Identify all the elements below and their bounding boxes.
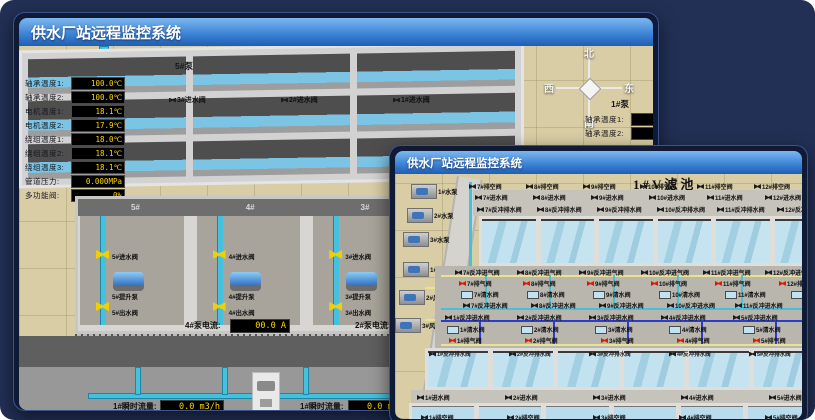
backwash-drain-valve[interactable]: 3#反冲排水阀 xyxy=(589,350,669,358)
air-release-valve[interactable]: 9#排气阀 xyxy=(587,279,651,288)
valve-icon xyxy=(517,270,524,275)
desktop: 供水厂站远程监控系统 取水泵房 3#进水阀2#进水阀1#进水阀 北 南 西 东 xyxy=(0,0,815,420)
inlet-valve[interactable]: 7#进水阀 xyxy=(475,193,533,202)
bay-pump-label: 5#提升泵 xyxy=(112,292,138,301)
valve-icon xyxy=(445,315,452,320)
valve-label: 3#进水阀 xyxy=(601,393,626,402)
backwash-inlet-valve[interactable]: 10#反冲进水阀 xyxy=(667,301,735,310)
valve-label: 5#排空阀 xyxy=(773,413,798,419)
valve-label: 2#排空阀 xyxy=(515,413,540,419)
valve-label: 7#排空阀 xyxy=(477,182,502,191)
backwash-drain-valve[interactable]: 8#反冲排水阀 xyxy=(537,205,597,214)
valve-label: 12#进水阀 xyxy=(773,193,801,202)
valve-icon xyxy=(707,195,714,200)
valve-icon xyxy=(429,352,436,357)
readout-row: 管道压力: 0.000MPa xyxy=(25,174,193,188)
clean-water-valve[interactable]: 8#清水阀 xyxy=(527,290,593,299)
valve-icon xyxy=(715,281,722,286)
clean-water-valve[interactable]: 2#清水阀 xyxy=(521,325,595,334)
empty-valve[interactable]: 2#排空阀 xyxy=(507,413,593,419)
valve-label: 9#进水阀 xyxy=(599,193,624,202)
air-inlet-valve[interactable]: 8#反冲进气阀 xyxy=(517,268,579,277)
water-box-icon xyxy=(461,291,473,299)
valve-icon xyxy=(657,207,664,212)
valve-icon xyxy=(533,195,540,200)
readout-row: 绕组温度3: 18.1℃ xyxy=(25,160,193,174)
air-release-valve[interactable]: 11#排气阀 xyxy=(715,279,779,288)
pump-motor-icon xyxy=(416,188,428,195)
intake-valve[interactable]: 2#进水阀 xyxy=(281,95,393,105)
valve-label: 3#反冲进水阀 xyxy=(597,313,634,322)
valve-icon xyxy=(449,338,456,343)
water-box-icon xyxy=(743,326,755,334)
valve-label: 9#反冲进气阀 xyxy=(587,268,624,277)
valve-label: 7#排气阀 xyxy=(467,279,492,288)
air-inlet-valve[interactable]: 11#反冲进气阀 xyxy=(703,268,765,277)
unit-label: 3#水泵 xyxy=(430,235,450,244)
clean-water-valve[interactable]: 10#清水阀 xyxy=(659,290,725,299)
unit-label: 2#水泵 xyxy=(434,211,454,220)
water-pump-unit[interactable]: 2#水泵 xyxy=(407,208,433,223)
valve-icon xyxy=(765,195,772,200)
valve-label: 11#清水阀 xyxy=(738,290,766,299)
panel-title: 5#泵 xyxy=(175,60,193,72)
air-release-valve[interactable]: 7#排气阀 xyxy=(459,279,523,288)
valve-label: 5#进水阀 xyxy=(777,393,802,402)
valve-label: 8#反冲进水阀 xyxy=(539,301,576,310)
water-box-icon xyxy=(791,291,802,299)
valve-label: 11#进水阀 xyxy=(715,193,743,202)
valve-icon xyxy=(579,270,586,275)
readout-row: 轴承温度2: 100.0℃ xyxy=(25,90,193,104)
valve-label: 9#排气阀 xyxy=(595,279,620,288)
clean-water-valve[interactable]: 1#清水阀 xyxy=(447,325,521,334)
valve-icon xyxy=(589,352,596,357)
air-release-valve[interactable]: 12#排气阀 xyxy=(779,279,802,288)
pump-window-titlebar[interactable]: 供水厂站远程监控系统 xyxy=(19,18,653,46)
compass-east: 东 xyxy=(624,80,634,95)
valve-label: 4#清水阀 xyxy=(682,325,707,334)
water-feeder-pipe xyxy=(469,182,472,268)
empty-valve[interactable]: 10#排空阀 xyxy=(640,182,697,191)
readout-value: 18.1℃ xyxy=(71,105,125,118)
valve-icon xyxy=(735,303,742,308)
valve-label: 3#反冲排水阀 xyxy=(597,350,631,358)
valve-icon xyxy=(640,184,647,189)
valve-label: 1#进水阀 xyxy=(401,95,430,105)
valve-label: 10#反冲排水阀 xyxy=(665,205,705,214)
valve-label: 7#清水阀 xyxy=(474,290,499,299)
air-inlet-valve[interactable]: 10#反冲进气阀 xyxy=(641,268,703,277)
valve-icon xyxy=(749,352,756,357)
valve-label: 10#清水阀 xyxy=(672,290,700,299)
readout-value: 18.1℃ xyxy=(71,147,125,160)
flow-meter-base xyxy=(260,399,272,407)
valve-icon xyxy=(703,270,710,275)
empty-valve[interactable]: 1#排空阀 xyxy=(421,413,507,419)
valve-label: 9#清水阀 xyxy=(606,290,631,299)
lift-pump-icon[interactable] xyxy=(346,272,377,286)
clean-water-valve[interactable]: 3#清水阀 xyxy=(595,325,669,334)
clean-water-valve[interactable]: 7#清水阀 xyxy=(461,290,527,299)
valve-icon xyxy=(507,415,514,419)
readout-label: 电机温度2: xyxy=(25,120,71,131)
valve-icon xyxy=(593,415,600,419)
top-backwash-drain-row: 7#反冲排水阀8#反冲排水阀9#反冲排水阀10#反冲排水阀11#反冲排水阀12#… xyxy=(477,205,802,214)
valve-icon xyxy=(417,395,424,400)
lift-pump-icon[interactable] xyxy=(230,272,261,286)
backwash-drain-valve[interactable]: 7#反冲排水阀 xyxy=(477,205,537,214)
bay-outlet-label: 5#出水阀 xyxy=(112,308,138,317)
readout-row: 轴承温度1: xyxy=(585,112,653,126)
outlet-branch-pipe xyxy=(222,367,228,395)
backwash-inlet-valve[interactable]: 3#反冲进水阀 xyxy=(589,313,661,322)
readout-row: 绕组温度1: 18.0℃ xyxy=(25,132,193,146)
valve-icon xyxy=(717,207,724,212)
valve-label: 5#反冲排水阀 xyxy=(757,350,791,358)
clean-water-valve[interactable]: 11#清水阀 xyxy=(725,290,791,299)
water-box-icon xyxy=(593,291,605,299)
valve-icon xyxy=(591,195,598,200)
inlet-valve[interactable]: 9#进水阀 xyxy=(591,193,649,202)
valve-icon xyxy=(455,270,462,275)
filter-pool[interactable] xyxy=(775,219,803,263)
valve-label: 11#反冲进气阀 xyxy=(711,268,751,277)
valve-label: 10#排气阀 xyxy=(659,279,687,288)
valve-icon xyxy=(531,303,538,308)
valve-label: 1#排气阀 xyxy=(457,336,482,345)
pump-bay: 5#进水阀 5#提升泵 5#出水阀 xyxy=(80,216,184,325)
valve-label: 10#反冲进气阀 xyxy=(649,268,689,277)
readout-value: 100.0℃ xyxy=(71,77,125,90)
valve-label: 8#排空阀 xyxy=(534,182,559,191)
compass-north: 北 xyxy=(584,46,594,60)
bay-pump-label: 4#提升泵 xyxy=(229,292,255,301)
empty-valve[interactable]: 9#排空阀 xyxy=(583,182,640,191)
valve-label: 1#反冲进水阀 xyxy=(453,313,490,322)
valve-label: 2#排气阀 xyxy=(533,336,558,345)
backwash-drain-valve[interactable]: 2#反冲排水阀 xyxy=(509,350,589,358)
valve-icon xyxy=(681,395,688,400)
valve-label: 10#反冲进水阀 xyxy=(675,301,715,310)
backwash-inlet-valve[interactable]: 2#反冲进水阀 xyxy=(517,313,589,322)
current4-value: 00.0 A xyxy=(230,319,290,333)
readout-label: 绕组温度2: xyxy=(25,148,71,159)
bottom-clean-water-row: 1#清水阀2#清水阀3#清水阀4#清水阀5#清水阀6#清水阀 xyxy=(447,325,802,334)
readout-value: 18.0℃ xyxy=(71,133,125,146)
inlet-valve[interactable]: 3#进水阀 xyxy=(593,393,681,402)
current2-label: 2#泵电流: xyxy=(355,320,391,331)
empty-valve[interactable]: 11#排空阀 xyxy=(697,182,754,191)
bottom-backwash-inlet-row: 1#反冲进水阀2#反冲进水阀3#反冲进水阀4#反冲进水阀5#反冲进水阀6#反冲进… xyxy=(445,313,802,322)
valve-label: 2#进水阀 xyxy=(289,95,318,105)
blower-unit[interactable]: 1#风机 xyxy=(403,262,429,277)
valve-icon xyxy=(733,315,740,320)
pump-bay: 4#进水阀 4#提升泵 4#出水阀 xyxy=(197,216,301,325)
valve-icon xyxy=(421,415,428,419)
valve-label: 9#反冲排水阀 xyxy=(605,205,642,214)
water-box-icon xyxy=(447,326,459,334)
intake-valve-row: 3#进水阀2#进水阀1#进水阀 xyxy=(169,95,505,105)
readout-value xyxy=(631,127,653,140)
valve-icon xyxy=(765,415,772,419)
filter-pool[interactable] xyxy=(541,219,595,263)
water-pump-unit[interactable]: 1#水泵 xyxy=(411,184,437,199)
bay-outlet-label: 4#出水阀 xyxy=(229,308,255,317)
panel-title: 1#泵 xyxy=(611,98,653,110)
valve-label: 5#清水阀 xyxy=(756,325,781,334)
inlet-valve[interactable]: 12#进水阀 xyxy=(765,193,802,202)
backwash-inlet-valve[interactable]: 1#反冲进水阀 xyxy=(445,313,517,322)
water-box-icon xyxy=(659,291,671,299)
air-release-valve[interactable]: 8#排气阀 xyxy=(523,279,587,288)
inlet-valve[interactable]: 10#进水阀 xyxy=(649,193,707,202)
valve-label: 1#进水阀 xyxy=(425,393,450,402)
valve-icon xyxy=(475,195,482,200)
filter-pool[interactable] xyxy=(482,219,536,263)
clean-water-valve[interactable]: 9#清水阀 xyxy=(593,290,659,299)
valve-label: 7#反冲进水阀 xyxy=(471,301,508,310)
outlet-branch-pipe xyxy=(135,367,141,395)
readout-label: 多功能阀: xyxy=(25,190,71,201)
flow1-label: 1#瞬时流量: xyxy=(113,401,157,410)
flow-meter-icon xyxy=(257,381,275,391)
valve-label: 3#清水阀 xyxy=(608,325,633,334)
window-title: 供水厂站远程监控系统 xyxy=(31,22,181,43)
valve-label: 4#反冲进水阀 xyxy=(669,313,706,322)
flow-meter-cabinet[interactable] xyxy=(252,372,280,410)
bottom-inlet-valve-row: 1#进水阀2#进水阀3#进水阀4#进水阀5#进水阀6#进水阀 xyxy=(417,393,802,402)
blower-unit[interactable]: 2#风机 xyxy=(399,290,425,305)
readout-row: 绕组温度2: 18.1℃ xyxy=(25,146,193,160)
backwash-drain-valve[interactable]: 12#反冲排水阀 xyxy=(777,205,802,214)
backwash-drain-valve[interactable]: 1#反冲排水阀 xyxy=(429,350,509,358)
valve-icon xyxy=(393,98,400,103)
valve-label: 8#反冲进气阀 xyxy=(525,268,562,277)
clean-water-valve[interactable]: 12#清水阀 xyxy=(791,290,802,299)
intake-valve[interactable]: 1#进水阀 xyxy=(393,95,505,105)
air-release-valve[interactable]: 3#排气阀 xyxy=(601,336,677,345)
intake-channel xyxy=(357,51,515,89)
valve-label: 12#反冲进气阀 xyxy=(773,268,802,277)
inlet-valve[interactable]: 8#进水阀 xyxy=(533,193,591,202)
inlet-valve[interactable]: 11#进水阀 xyxy=(707,193,765,202)
valve-label: 2#反冲进水阀 xyxy=(525,313,562,322)
backwash-drain-valve[interactable]: 5#反冲排水阀 xyxy=(749,350,802,358)
blower-motor-icon xyxy=(400,322,412,329)
readout-value: 100.0℃ xyxy=(71,91,125,104)
valve-label: 5#排气阀 xyxy=(761,336,786,345)
valve-icon xyxy=(667,303,674,308)
pump5-panel: 5#泵 轴承温度1: 100.0℃ 轴承温度2: 100.0℃ 电机温度1: 1… xyxy=(25,60,193,202)
bay-outlet-label: 3#出水阀 xyxy=(345,308,371,317)
empty-valve[interactable]: 5#排空阀 xyxy=(765,413,802,419)
valve-icon xyxy=(281,98,288,103)
water-pump-unit[interactable]: 3#水泵 xyxy=(403,232,429,247)
water-box-icon xyxy=(669,326,681,334)
top-filter-pools xyxy=(479,216,802,266)
pump5-readouts: 轴承温度1: 100.0℃ 轴承温度2: 100.0℃ 电机温度1: 18.1℃… xyxy=(25,76,193,202)
valve-icon xyxy=(754,184,761,189)
valve-label: 11#排空阀 xyxy=(705,182,733,191)
filter-pool[interactable] xyxy=(716,219,770,263)
air-release-valve[interactable]: 4#排气阀 xyxy=(677,336,753,345)
bay-number: 5# xyxy=(78,199,193,216)
backwash-drain-valve[interactable]: 4#反冲排水阀 xyxy=(669,350,749,358)
top-empty-valve-row: 7#排空阀8#排空阀9#排空阀10#排空阀11#排空阀12#排空阀 xyxy=(469,182,802,191)
empty-valve[interactable]: 8#排空阀 xyxy=(526,182,583,191)
valve-icon xyxy=(593,395,600,400)
inlet-valve[interactable]: 5#进水阀 xyxy=(769,393,802,402)
blower-unit[interactable]: 3#风机 xyxy=(395,318,421,333)
pump1-panel: 1#泵 轴承温度1: 轴承温度2: xyxy=(585,98,653,140)
readout-label: 轴承温度2: xyxy=(25,92,71,103)
bottom-empty-valve-row: 1#排空阀2#排空阀3#排空阀4#排空阀5#排空阀6#排空阀 xyxy=(421,413,802,419)
valve-label: 1#清水阀 xyxy=(460,325,485,334)
bay-pump-label: 3#提升泵 xyxy=(345,292,371,301)
valve-label: 2#反冲排水阀 xyxy=(517,350,551,358)
filter-window-titlebar[interactable]: 供水厂站远程监控系统 xyxy=(395,151,802,174)
valve-label: 12#排气阀 xyxy=(787,279,802,288)
backwash-inlet-valve[interactable]: 8#反冲进水阀 xyxy=(531,301,599,310)
bay-number: 4# xyxy=(193,199,308,216)
valve-icon xyxy=(641,270,648,275)
readout-label: 轴承温度1: xyxy=(25,78,71,89)
empty-valve[interactable]: 3#排空阀 xyxy=(593,413,679,419)
top-air-inlet-row: 7#反冲进气阀8#反冲进气阀9#反冲进气阀10#反冲进气阀11#反冲进气阀12#… xyxy=(455,268,802,277)
valve-label: 5#反冲进水阀 xyxy=(741,313,778,322)
clean-water-valve[interactable]: 4#清水阀 xyxy=(669,325,743,334)
top-inlet-valve-row: 7#进水阀8#进水阀9#进水阀10#进水阀11#进水阀12#进水阀 xyxy=(475,193,802,202)
top-backwash-inlet-row: 7#反冲进水阀8#反冲进水阀9#反冲进水阀10#反冲进水阀11#反冲进水阀12#… xyxy=(463,301,802,310)
valve-label: 3#排气阀 xyxy=(609,336,634,345)
clean-water-valve[interactable]: 5#清水阀 xyxy=(743,325,802,334)
valve-label: 8#排气阀 xyxy=(531,279,556,288)
backwash-drain-valve[interactable]: 10#反冲排水阀 xyxy=(657,205,717,214)
valve-label: 12#反冲排水阀 xyxy=(785,205,802,214)
valve-icon xyxy=(777,207,784,212)
empty-valve[interactable]: 4#排空阀 xyxy=(679,413,765,419)
readout-row: 电机温度2: 17.9℃ xyxy=(25,118,193,132)
valve-icon xyxy=(601,338,608,343)
valve-label: 11#排气阀 xyxy=(723,279,751,288)
backwash-drain-valve[interactable]: 11#反冲排水阀 xyxy=(717,205,777,214)
filter-pool[interactable] xyxy=(658,219,712,263)
valve-icon xyxy=(509,352,516,357)
valve-label: 2#清水阀 xyxy=(534,325,559,334)
pump-motor-icon xyxy=(408,236,420,243)
readout-row: 电机温度1: 18.1℃ xyxy=(25,104,193,118)
readout-label: 轴承温度2: xyxy=(585,128,631,139)
valve-icon xyxy=(779,281,786,286)
air-release-valve[interactable]: 10#排气阀 xyxy=(651,279,715,288)
valve-label: 12#排空阀 xyxy=(762,182,790,191)
top-air-release-row: 7#排气阀8#排气阀9#排气阀10#排气阀11#排气阀12#排气阀 xyxy=(459,279,802,288)
water-box-icon xyxy=(521,326,533,334)
valve-icon xyxy=(525,338,532,343)
top-clean-water-row: 7#清水阀8#清水阀9#清水阀10#清水阀11#清水阀12#清水阀 xyxy=(461,290,802,299)
backwash-drain-valve[interactable]: 9#反冲排水阀 xyxy=(597,205,657,214)
water-box-icon xyxy=(725,291,737,299)
current4-label: 4#泵电流: xyxy=(185,320,221,331)
valve-icon xyxy=(589,315,596,320)
valve-label: 8#反冲排水阀 xyxy=(545,205,582,214)
valve-icon xyxy=(651,281,658,286)
valve-icon xyxy=(459,281,466,286)
flow2-label: 1#瞬时流量: xyxy=(300,401,344,410)
intake-channel xyxy=(193,138,351,176)
inlet-valve[interactable]: 1#进水阀 xyxy=(417,393,505,402)
water-box-icon xyxy=(595,326,607,334)
outlet-branch-pipe xyxy=(303,367,309,395)
valve-label: 1#反冲排水阀 xyxy=(437,350,471,358)
inlet-valve[interactable]: 2#进水阀 xyxy=(505,393,593,402)
lift-pump-icon[interactable] xyxy=(113,272,144,286)
valve-icon xyxy=(661,315,668,320)
readout-label: 绕组温度1: xyxy=(25,134,71,145)
valve-icon xyxy=(587,281,594,286)
unit-label: 1#水泵 xyxy=(438,187,458,196)
valve-label: 3#排空阀 xyxy=(601,413,626,419)
air-inlet-valve[interactable]: 12#反冲进气阀 xyxy=(765,268,802,277)
air-release-valve[interactable]: 1#排气阀 xyxy=(449,336,525,345)
backwash-inlet-valve[interactable]: 4#反冲进水阀 xyxy=(661,313,733,322)
empty-valve[interactable]: 7#排空阀 xyxy=(469,182,526,191)
flow1-value: 0.0 m3/h xyxy=(160,400,224,410)
backwash-inlet-valve[interactable]: 5#反冲进水阀 xyxy=(733,313,802,322)
valve-label: 4#进水阀 xyxy=(689,393,714,402)
pump1-readouts: 轴承温度1: 轴承温度2: xyxy=(585,112,653,140)
valve-label: 7#进水阀 xyxy=(483,193,508,202)
valve-icon xyxy=(753,338,760,343)
air-release-valve[interactable]: 5#排气阀 xyxy=(753,336,802,345)
backwash-inlet-valve[interactable]: 7#反冲进水阀 xyxy=(463,301,531,310)
valve-icon xyxy=(599,303,606,308)
valve-icon xyxy=(765,270,772,275)
valve-icon xyxy=(669,352,676,357)
valve-icon xyxy=(697,184,704,189)
air-release-valve[interactable]: 2#排气阀 xyxy=(525,336,601,345)
window-title: 供水厂站远程监控系统 xyxy=(407,155,522,171)
readout-value: 0.000MPa xyxy=(71,175,125,188)
inlet-valve[interactable]: 4#进水阀 xyxy=(681,393,769,402)
valve-icon xyxy=(505,395,512,400)
readout-row: 轴承温度2: xyxy=(585,126,653,140)
valve-icon xyxy=(583,184,590,189)
valve-icon xyxy=(537,207,544,212)
air-inlet-valve[interactable]: 9#反冲进气阀 xyxy=(579,268,641,277)
valve-label: 4#排气阀 xyxy=(685,336,710,345)
water-box-icon xyxy=(527,291,539,299)
filter-pool[interactable] xyxy=(599,219,653,263)
filter-station-view: 1#V滤池 1#水泵 2#水泵 3#水泵 1#风机 2#风机 3#风机 7#排空… xyxy=(395,174,802,419)
valve-label: 1#排空阀 xyxy=(429,413,454,419)
air-inlet-valve[interactable]: 7#反冲进气阀 xyxy=(455,268,517,277)
empty-valve[interactable]: 12#排空阀 xyxy=(754,182,802,191)
bay-inlet-label: 5#进水阀 xyxy=(112,252,138,261)
valve-label: 8#进水阀 xyxy=(541,193,566,202)
valve-icon xyxy=(523,281,530,286)
valve-label: 10#进水阀 xyxy=(657,193,685,202)
valve-icon xyxy=(677,338,684,343)
intake-channel xyxy=(193,54,351,92)
valve-label: 7#反冲排水阀 xyxy=(485,205,522,214)
backwash-inlet-valve[interactable]: 11#反冲进水阀 xyxy=(735,301,802,310)
valve-icon xyxy=(769,395,776,400)
valve-icon xyxy=(463,303,470,308)
valve-label: 4#反冲排水阀 xyxy=(677,350,711,358)
backwash-inlet-valve[interactable]: 9#反冲进水阀 xyxy=(599,301,667,310)
